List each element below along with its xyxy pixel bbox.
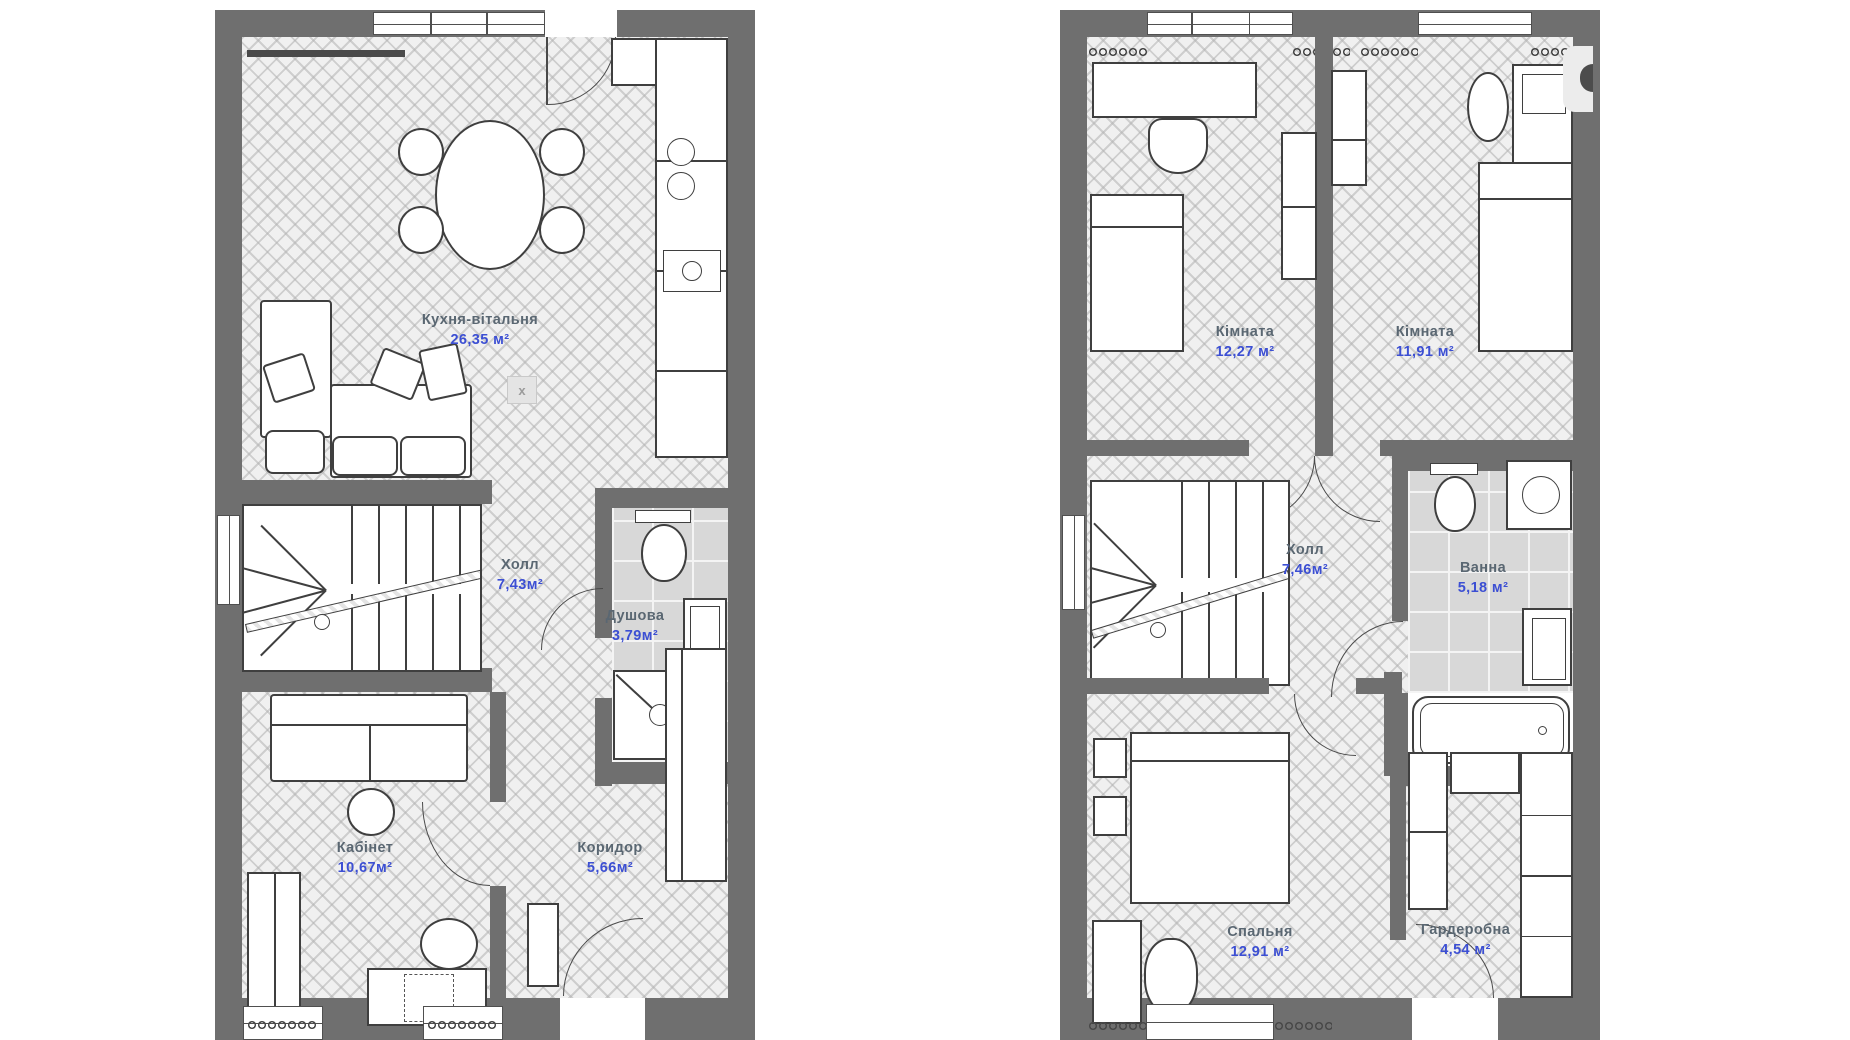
- wall: [490, 886, 506, 998]
- toilet-tank: [1430, 463, 1478, 475]
- room-area: 3,79м²: [580, 626, 690, 646]
- room-label-bedroom: Спальня 12,91 м²: [1205, 922, 1315, 963]
- chair: [398, 128, 444, 176]
- wall: [490, 692, 506, 802]
- bed: [1478, 162, 1573, 352]
- radiator: [247, 1012, 317, 1038]
- screenshot-root: { "colors": { "wall": "#6f6f6f", "floor_…: [0, 0, 1850, 1040]
- floor-plan-1: x: [215, 10, 755, 1040]
- toilet-tank: [635, 510, 691, 523]
- bed-pillow-line: [1132, 760, 1288, 762]
- room-area: 10,67м²: [305, 858, 425, 878]
- office-chair: [420, 918, 478, 970]
- dresser: [1092, 920, 1142, 1024]
- cooktop-burner: [667, 172, 695, 200]
- room-name: Кімната: [1370, 322, 1480, 342]
- shelving-unit: [1520, 752, 1573, 998]
- wall: [728, 10, 755, 1040]
- room-label-bath: Ванна 5,18 м²: [1438, 558, 1528, 599]
- staircase: [242, 504, 482, 672]
- window-mullion: [430, 13, 432, 34]
- stairs-post: [314, 614, 330, 630]
- stairs-treads: [326, 506, 482, 584]
- bathtub-drain: [1538, 726, 1547, 735]
- room-area: 26,35 м²: [395, 330, 565, 350]
- washing-machine: [1506, 460, 1572, 530]
- cabinet-divider: [1283, 206, 1315, 208]
- room-name: Гардеробна: [1408, 920, 1523, 940]
- nightstand: [1093, 796, 1127, 836]
- bathroom-sink: [1522, 608, 1572, 686]
- wardrobe-divider: [681, 650, 683, 880]
- shelf-divider: [1410, 831, 1446, 833]
- double-bed: [1130, 732, 1290, 904]
- wall: [1380, 440, 1573, 456]
- carousel-next-button[interactable]: [1563, 46, 1593, 112]
- window-mullion: [1191, 13, 1193, 34]
- tv-shelf: [247, 50, 405, 57]
- desk-chair: [1467, 72, 1509, 142]
- armchair: [1144, 938, 1198, 1014]
- room-label-kitchen-living: Кухня-вітальня 26,35 м²: [395, 310, 565, 351]
- shelving-unit: [1450, 752, 1520, 794]
- shoe-cabinet: [527, 903, 559, 987]
- chair: [539, 128, 585, 176]
- room-name: Холл: [1255, 540, 1355, 560]
- window: [1147, 12, 1293, 35]
- room-area: 4,54 м²: [1408, 940, 1523, 960]
- washing-machine-drum: [1522, 476, 1560, 514]
- wall: [1087, 678, 1269, 694]
- wall: [595, 488, 728, 508]
- shelving-unit: [1408, 752, 1448, 910]
- toilet: [1434, 476, 1476, 532]
- room-area: 5,18 м²: [1438, 578, 1528, 598]
- radiator: [1274, 1014, 1332, 1038]
- room-area: 12,91 м²: [1205, 942, 1315, 962]
- window: [217, 515, 240, 605]
- kitchen-sink: [663, 250, 721, 292]
- room-name: Душова: [580, 606, 690, 626]
- chair: [539, 206, 585, 254]
- stairs-winder-line: [1090, 585, 1156, 609]
- radiator: [1088, 1014, 1146, 1038]
- room-area: 12,27 м²: [1190, 342, 1300, 362]
- chair: [398, 206, 444, 254]
- toilet: [641, 524, 687, 582]
- room-label-corridor: Коридор 5,66м²: [555, 838, 665, 879]
- kitchen-counter: [655, 38, 728, 458]
- room-name: Ванна: [1438, 558, 1528, 578]
- sink-basin: [1532, 618, 1566, 680]
- cooktop-burner: [667, 138, 695, 166]
- room-label-hall: Холл 7,43м²: [460, 555, 580, 596]
- room-label-hall: Холл 7,46м²: [1255, 540, 1355, 581]
- sofa-cushion: [265, 430, 325, 474]
- room-name: Кабінет: [305, 838, 425, 858]
- door-opening: [1412, 998, 1498, 1040]
- wardrobe: [665, 648, 727, 882]
- room-area: 5,66м²: [555, 858, 665, 878]
- counter-divider: [657, 370, 726, 372]
- room-label-office: Кабінет 10,67м²: [305, 838, 425, 879]
- shelf-divider: [1522, 936, 1571, 938]
- door-opening: [560, 998, 645, 1040]
- x-marker: x: [507, 376, 537, 404]
- side-table: [347, 788, 395, 836]
- sofa-cushion: [332, 436, 398, 476]
- desk-chair: [1148, 118, 1208, 174]
- door-leaf: [546, 37, 548, 105]
- window: [1418, 12, 1532, 35]
- window: [1146, 1004, 1274, 1040]
- bed-pillow-line: [1092, 226, 1182, 228]
- room-area: 11,91 м²: [1370, 342, 1480, 362]
- radiator: [1360, 40, 1418, 64]
- door-opening: [545, 10, 617, 37]
- window-mullion: [486, 13, 488, 34]
- room-area: 7,46м²: [1255, 560, 1355, 580]
- room-area: 7,43м²: [460, 575, 580, 595]
- desk-item: [1522, 74, 1566, 114]
- stairs-post: [1150, 622, 1166, 638]
- room-name: Кухня-вітальня: [395, 310, 565, 330]
- shelf-divider: [1522, 875, 1571, 877]
- cabinet: [1281, 132, 1317, 280]
- window: [373, 12, 545, 35]
- staircase: [1090, 480, 1290, 686]
- sofa-cushion: [400, 436, 466, 476]
- wall: [1392, 455, 1408, 621]
- radiator: [1088, 40, 1148, 64]
- office-sofa: [270, 694, 468, 782]
- room-name: Кімната: [1190, 322, 1300, 342]
- sink-drain: [682, 261, 702, 281]
- room-label-room1: Кімната 12,27 м²: [1190, 322, 1300, 363]
- cabinet-divider: [1333, 139, 1365, 141]
- window: [1062, 515, 1085, 610]
- wall: [1573, 10, 1600, 1040]
- room-name: Коридор: [555, 838, 665, 858]
- bed-pillow-line: [1480, 198, 1571, 200]
- room-label-room2: Кімната 11,91 м²: [1370, 322, 1480, 363]
- sofa-seat-divider: [369, 724, 371, 782]
- room-label-wardrobe: Гардеробна 4,54 м²: [1408, 920, 1523, 961]
- cabinet: [1331, 70, 1367, 186]
- window-mullion: [1249, 13, 1251, 34]
- wall: [242, 480, 492, 504]
- half-circle-icon: [1580, 64, 1593, 92]
- room-name: Спальня: [1205, 922, 1315, 942]
- nightstand: [1093, 738, 1127, 778]
- desk: [1092, 62, 1257, 118]
- wall: [1390, 766, 1406, 940]
- dining-table: [435, 120, 545, 270]
- bed: [1090, 194, 1184, 352]
- radiator: [427, 1012, 497, 1038]
- shelf-divider: [1522, 815, 1571, 817]
- wall: [1087, 440, 1249, 456]
- floor-plan-2: Кімната 12,27 м² Кімната 11,91 м² Холл 7…: [1060, 10, 1600, 1040]
- room-label-shower: Душова 3,79м²: [580, 606, 690, 647]
- room-name: Холл: [460, 555, 580, 575]
